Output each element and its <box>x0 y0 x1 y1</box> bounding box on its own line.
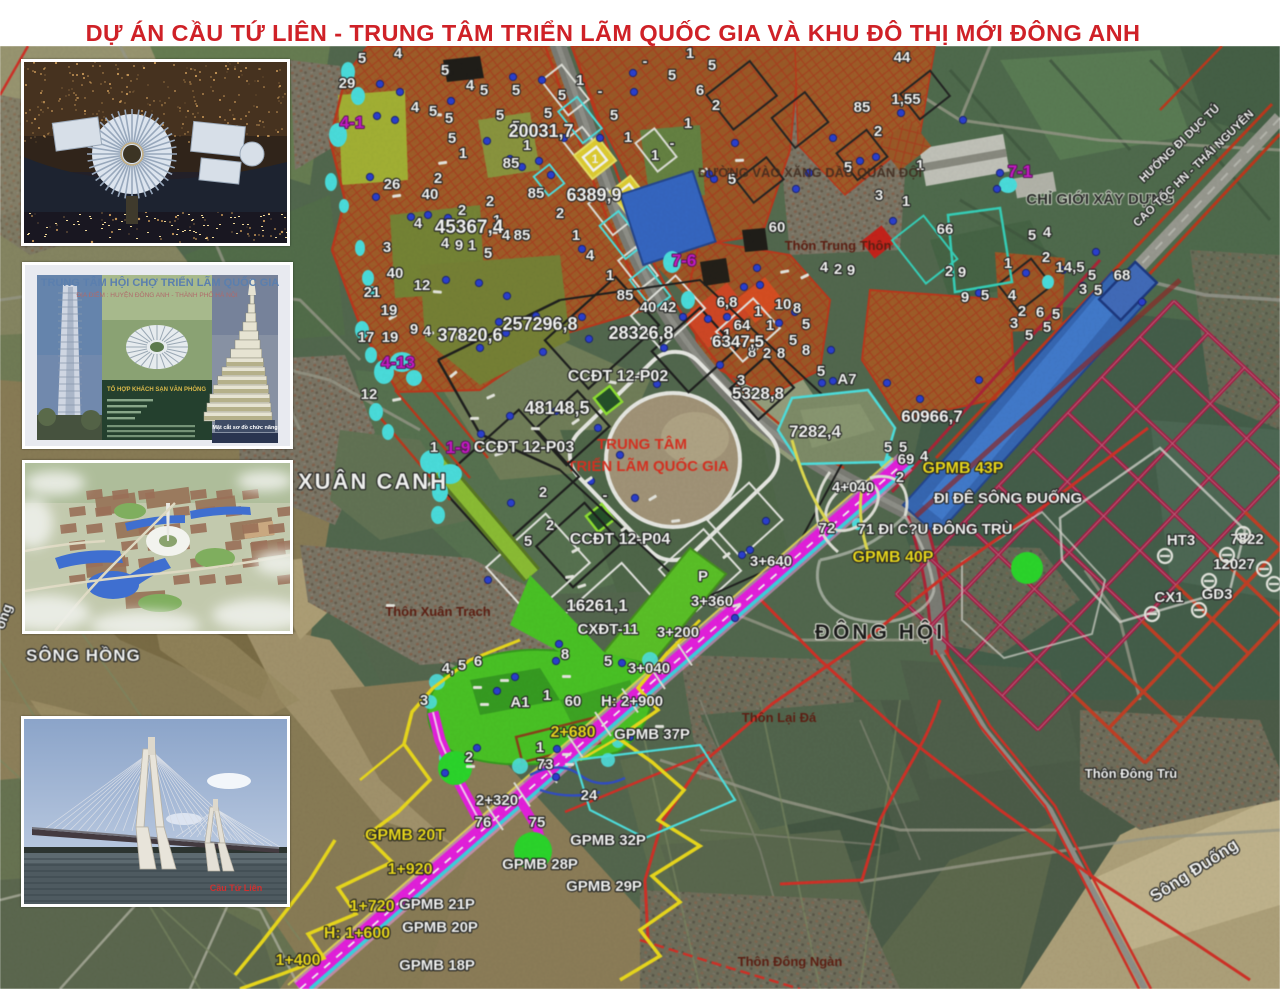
svg-text:Mặt cắt sơ đồ chức năng: Mặt cắt sơ đồ chức năng <box>212 424 277 431</box>
svg-text:TỔ HỢP KHÁCH SẠN VĂN PHÒNG: TỔ HỢP KHÁCH SẠN VĂN PHÒNG <box>107 385 206 393</box>
svg-text:TRUNG TÂM HỘI CHỢ TRIỂN LÃM QU: TRUNG TÂM HỘI CHỢ TRIỂN LÃM QUỐC GIA <box>41 275 280 289</box>
svg-text:Cầu Tứ Liên: Cầu Tứ Liên <box>210 883 263 893</box>
